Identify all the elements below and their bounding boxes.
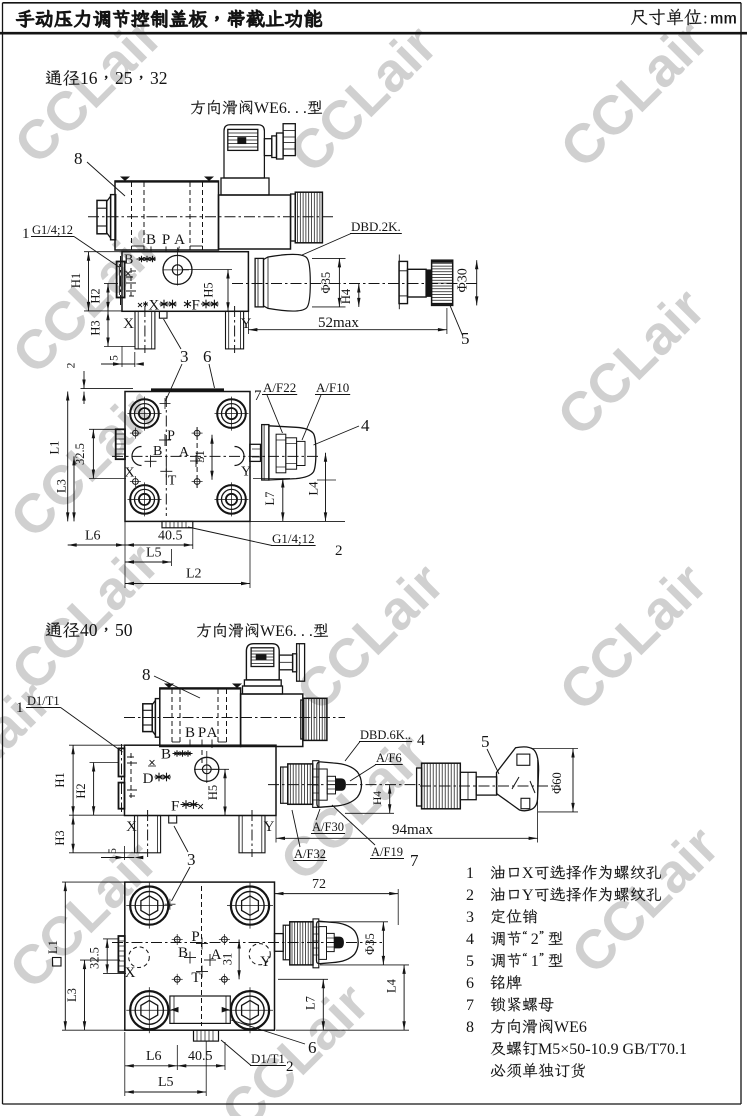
svg-text:2: 2 bbox=[335, 543, 343, 559]
svg-text:L7: L7 bbox=[263, 492, 277, 506]
svg-text:B: B bbox=[185, 725, 195, 741]
svg-text:L6: L6 bbox=[85, 529, 101, 544]
svg-text:6: 6 bbox=[308, 1038, 317, 1057]
svg-text:8: 8 bbox=[142, 665, 151, 684]
svg-text:WE6: WE6 bbox=[554, 1019, 587, 1036]
svg-text:G1/4;12: G1/4;12 bbox=[272, 531, 315, 546]
svg-text:31: 31 bbox=[193, 450, 207, 463]
svg-text:1: 1 bbox=[531, 953, 539, 970]
svg-text:H2: H2 bbox=[89, 288, 103, 303]
svg-text:H5: H5 bbox=[206, 785, 220, 800]
svg-text:4: 4 bbox=[417, 732, 425, 749]
svg-text:A/F19: A/F19 bbox=[371, 845, 403, 859]
svg-text:5: 5 bbox=[481, 732, 490, 751]
svg-text:H5: H5 bbox=[202, 282, 216, 297]
svg-text:3: 3 bbox=[187, 850, 196, 869]
svg-text:A/F30: A/F30 bbox=[312, 820, 344, 834]
svg-text:L6: L6 bbox=[146, 1049, 162, 1064]
svg-text:6: 6 bbox=[466, 975, 474, 992]
svg-text:X: X bbox=[125, 965, 136, 981]
svg-text:D: D bbox=[143, 771, 154, 787]
svg-text:A/F6: A/F6 bbox=[376, 751, 402, 765]
svg-text:L2: L2 bbox=[186, 567, 202, 582]
svg-text:32.5: 32.5 bbox=[73, 443, 87, 465]
svg-text:X: X bbox=[123, 316, 134, 332]
svg-text:50: 50 bbox=[115, 620, 133, 640]
svg-text:X: X bbox=[522, 865, 534, 882]
svg-text:D1/T1: D1/T1 bbox=[251, 1051, 285, 1066]
svg-text:Y: Y bbox=[264, 819, 275, 835]
svg-text:B: B bbox=[178, 945, 188, 961]
svg-text:A: A bbox=[179, 445, 190, 460]
svg-text:A/F10: A/F10 bbox=[316, 380, 349, 395]
svg-text:G1/4;12: G1/4;12 bbox=[32, 223, 73, 237]
svg-text:A/F32: A/F32 bbox=[294, 847, 326, 861]
svg-text:L4: L4 bbox=[385, 978, 399, 993]
svg-text:Y: Y bbox=[260, 954, 271, 970]
svg-text:Y: Y bbox=[241, 464, 251, 479]
svg-text:B: B bbox=[146, 232, 156, 248]
svg-text:8: 8 bbox=[466, 1019, 474, 1036]
svg-text:H4: H4 bbox=[339, 288, 353, 304]
svg-text:5: 5 bbox=[109, 355, 121, 361]
svg-text:H4: H4 bbox=[372, 791, 384, 805]
svg-text:H2: H2 bbox=[74, 783, 88, 798]
svg-text:P: P bbox=[198, 725, 206, 741]
svg-text:Φ35: Φ35 bbox=[363, 933, 377, 955]
svg-text:DBD.2K.: DBD.2K. bbox=[351, 219, 401, 234]
svg-text:L3: L3 bbox=[55, 479, 69, 493]
svg-text:52max: 52max bbox=[318, 315, 359, 331]
svg-text:Φ60: Φ60 bbox=[550, 772, 564, 794]
svg-text:L3: L3 bbox=[65, 988, 79, 1002]
svg-text:Y: Y bbox=[522, 887, 534, 904]
svg-text:F: F bbox=[171, 799, 179, 815]
svg-text:WE6. . .: WE6. . . bbox=[254, 100, 307, 117]
svg-text:H3: H3 bbox=[89, 320, 103, 335]
svg-text:L1: L1 bbox=[46, 940, 60, 954]
svg-text:P: P bbox=[167, 428, 175, 443]
svg-text:mm: mm bbox=[710, 11, 737, 29]
svg-text:M5×50-10.9 GB/T70.1: M5×50-10.9 GB/T70.1 bbox=[538, 1041, 687, 1058]
svg-text:2: 2 bbox=[466, 887, 474, 904]
svg-text:A/F22: A/F22 bbox=[263, 380, 296, 395]
svg-text:5: 5 bbox=[466, 953, 474, 970]
svg-text:B: B bbox=[124, 253, 133, 268]
svg-text:Φ35: Φ35 bbox=[319, 272, 333, 294]
svg-text:X: X bbox=[126, 819, 137, 835]
svg-text:H1: H1 bbox=[53, 772, 67, 787]
svg-text:31: 31 bbox=[221, 953, 235, 966]
svg-text:1: 1 bbox=[16, 700, 24, 716]
svg-text:25: 25 bbox=[115, 68, 133, 88]
svg-text:94max: 94max bbox=[392, 822, 433, 838]
svg-text:2: 2 bbox=[66, 362, 78, 368]
svg-text::: : bbox=[703, 9, 708, 28]
svg-text:3: 3 bbox=[180, 347, 189, 366]
svg-text:L7: L7 bbox=[304, 996, 318, 1010]
svg-text:32: 32 bbox=[150, 68, 168, 88]
svg-text:1: 1 bbox=[22, 226, 30, 242]
svg-text:40.5: 40.5 bbox=[158, 529, 183, 544]
svg-text:H3: H3 bbox=[53, 830, 67, 845]
svg-text:72: 72 bbox=[312, 877, 326, 892]
svg-text:Φ30: Φ30 bbox=[456, 268, 471, 292]
svg-text:40: 40 bbox=[80, 620, 98, 640]
svg-text:32.5: 32.5 bbox=[88, 947, 102, 969]
svg-text:L4: L4 bbox=[307, 481, 321, 496]
svg-text:5: 5 bbox=[107, 848, 119, 854]
svg-text:L5: L5 bbox=[158, 1075, 174, 1090]
svg-text:F: F bbox=[192, 297, 200, 313]
svg-text:WE6. . .: WE6. . . bbox=[260, 623, 313, 640]
svg-text:L5: L5 bbox=[146, 546, 162, 561]
svg-text:H1: H1 bbox=[69, 273, 83, 288]
svg-text:A: A bbox=[207, 725, 218, 741]
svg-text:3: 3 bbox=[466, 909, 474, 926]
svg-text:2: 2 bbox=[286, 1059, 294, 1075]
svg-text:5: 5 bbox=[461, 329, 470, 348]
svg-text:4: 4 bbox=[466, 931, 474, 948]
svg-text:40.5: 40.5 bbox=[188, 1049, 213, 1064]
svg-text:7: 7 bbox=[254, 388, 262, 404]
svg-text:6: 6 bbox=[203, 347, 212, 366]
svg-text:1: 1 bbox=[466, 865, 474, 882]
svg-text:A: A bbox=[174, 232, 185, 248]
svg-text:B: B bbox=[161, 747, 171, 763]
svg-text:4: 4 bbox=[361, 416, 370, 435]
svg-text:P: P bbox=[162, 232, 170, 248]
svg-text:T: T bbox=[191, 970, 200, 986]
svg-text:2: 2 bbox=[531, 931, 539, 948]
svg-text:7: 7 bbox=[466, 997, 474, 1014]
svg-text:T: T bbox=[168, 473, 177, 488]
svg-text:L1: L1 bbox=[48, 441, 62, 455]
svg-text:16: 16 bbox=[80, 68, 98, 88]
svg-text:7: 7 bbox=[410, 851, 419, 870]
svg-text:8: 8 bbox=[74, 149, 83, 168]
svg-text:D1/T1: D1/T1 bbox=[27, 694, 60, 708]
svg-text:DBD.6K..: DBD.6K.. bbox=[360, 728, 411, 742]
